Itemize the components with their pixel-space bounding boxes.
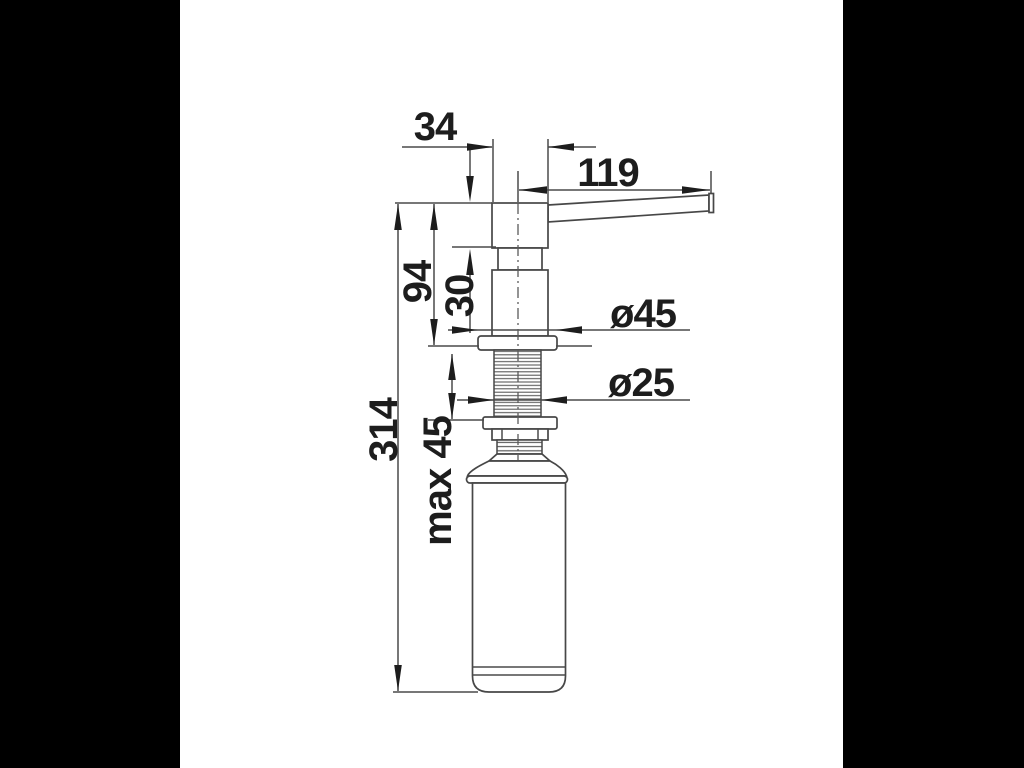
dim-label-thread-diameter: ø25 <box>608 361 675 405</box>
securing-nut-body <box>492 429 548 440</box>
dim-label-spout-reach: 119 <box>577 151 639 195</box>
ribbed-connector <box>497 440 542 454</box>
letterboxed-product-image: 34 119 ø45 ø25 94 30 314 max 45 <box>0 0 1024 768</box>
bottle-ring <box>467 476 568 483</box>
bottle-body <box>473 483 566 692</box>
dim-label-head-height: 30 <box>438 275 482 318</box>
securing-nut-flange <box>483 417 557 429</box>
pump-neck <box>498 248 542 270</box>
dim-label-above-counter-height: 94 <box>396 259 440 303</box>
dim-label-total-height: 314 <box>362 396 406 461</box>
dim-label-head-width: 34 <box>414 105 458 149</box>
technical-drawing: 34 119 ø45 ø25 94 30 314 max 45 <box>0 0 1024 768</box>
pump-head-cap <box>492 203 548 248</box>
flared-skirt <box>489 454 550 461</box>
spout-tip-cap <box>709 194 714 213</box>
dim-label-max-counter-thickness: max 45 <box>416 415 460 545</box>
pump-body <box>492 270 548 336</box>
dim-label-flange-diameter: ø45 <box>610 292 677 336</box>
